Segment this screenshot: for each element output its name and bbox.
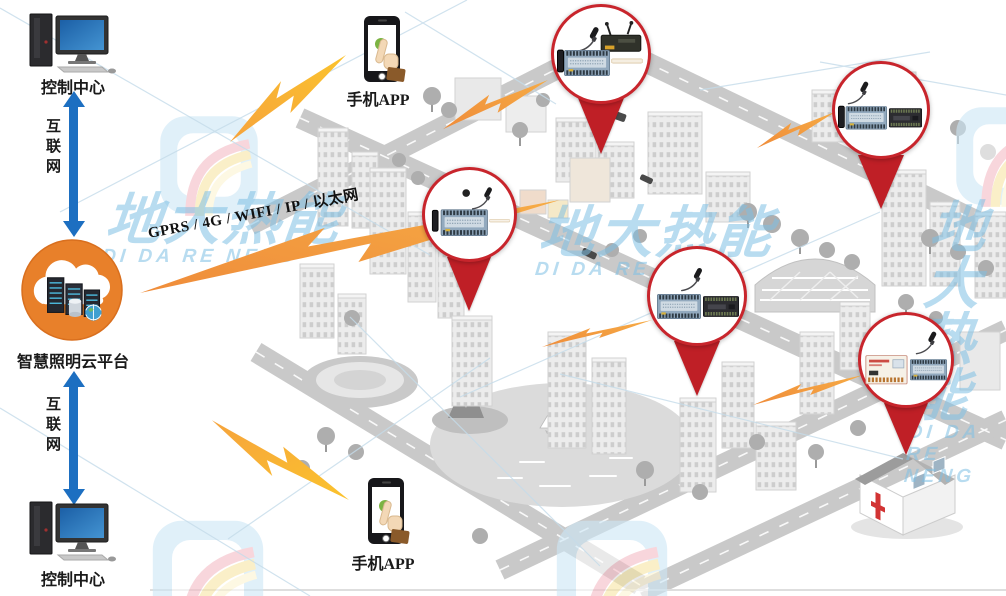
internet-label-bottom: 互联网: [42, 396, 63, 456]
internet-arrow-top: [69, 106, 78, 222]
lightning-bolt: [757, 112, 835, 148]
mobile-app-top-label: 手机APP: [323, 86, 433, 110]
callout-center: [647, 246, 747, 346]
lightning-bolt: [212, 420, 349, 500]
callout-bottom-right: [858, 312, 954, 408]
internet-label-top: 互联网: [42, 118, 63, 178]
lamp-controller-with-gateway-icon: [557, 21, 645, 87]
callout-mid-left: [422, 167, 517, 262]
desktop-computer-icon: [24, 500, 116, 564]
callout-top-center: [551, 4, 651, 104]
internet-arrow-bottom: [69, 386, 78, 490]
controller-and-power-module-icon: [653, 264, 741, 328]
callout-pin: [884, 403, 928, 455]
callout-pin: [447, 257, 491, 311]
lightning-bolt: [443, 80, 548, 129]
meter-and-controller-icon: [863, 329, 949, 391]
callout-pin: [858, 155, 904, 209]
lightning-bolt: [542, 320, 652, 347]
lightning-bolts: [140, 55, 863, 500]
controller-and-power-module-icon: [838, 79, 924, 141]
cloud-platform-label: 智慧照明云平台: [0, 348, 146, 372]
smartphone-touch-icon: [348, 14, 422, 94]
single-lamp-controller-icon: [428, 184, 512, 246]
smart-lighting-topology-diagram: 地大热能 DI DA RE NENG 地大热能 DI DA RE NENG 地大…: [0, 0, 1006, 596]
callout-pin: [674, 341, 720, 396]
control-center-bottom-label: 控制中心: [18, 566, 128, 590]
callout-top-right: [832, 61, 930, 159]
desktop-computer-icon: [24, 12, 116, 76]
callout-pin: [578, 98, 624, 154]
cloud-platform: [21, 239, 123, 341]
mobile-app-bottom-label: 手机APP: [328, 550, 438, 574]
cloud-server-icon: [21, 239, 123, 341]
lightning-bolt: [753, 375, 863, 405]
smartphone-touch-icon: [352, 476, 426, 556]
